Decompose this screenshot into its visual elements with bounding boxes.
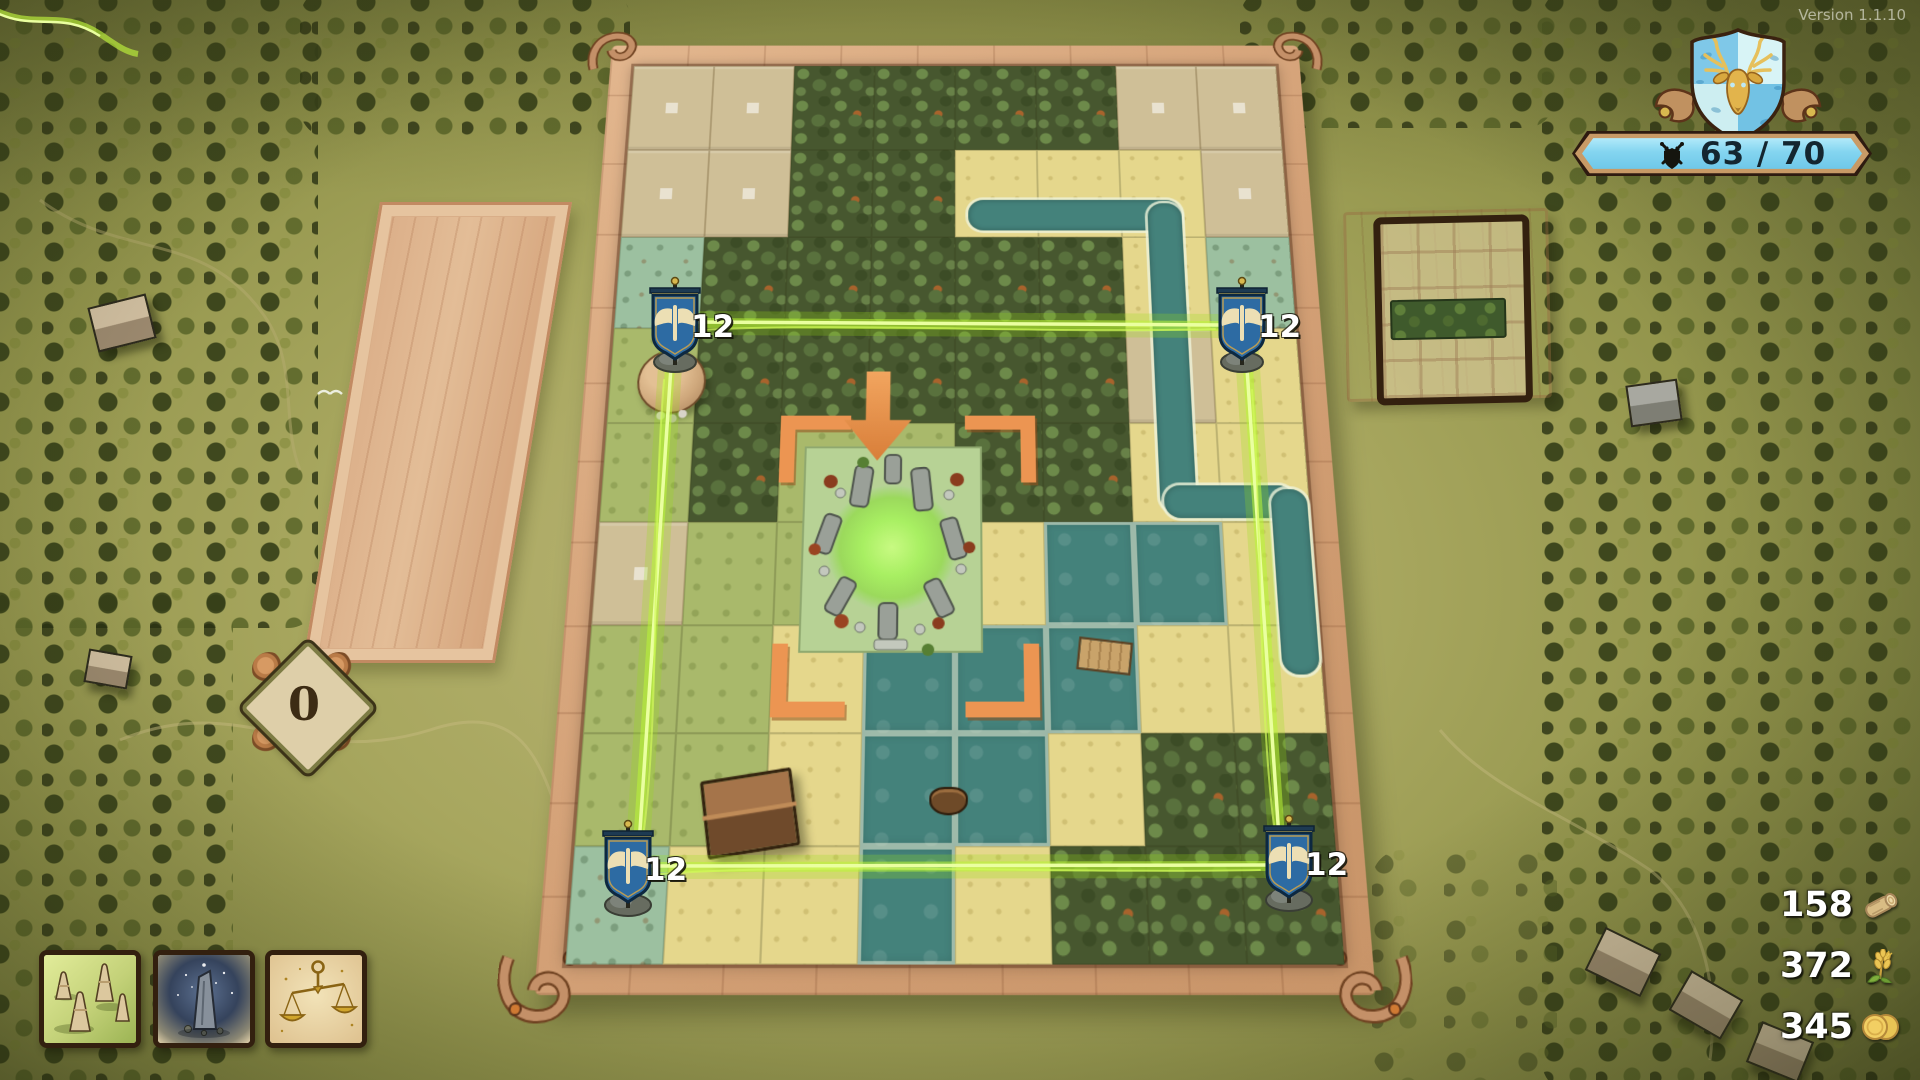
gold-coins-icon [1862, 1010, 1900, 1044]
wood-log-icon [1862, 888, 1900, 922]
flag-count: 12 [1305, 847, 1348, 883]
board-tile-water[interactable] [955, 733, 1050, 846]
plot-counter-badge: 0 [246, 646, 362, 762]
board-tile-sand[interactable] [955, 846, 1052, 964]
board-tile-forest[interactable] [788, 150, 873, 237]
next-tile-preview[interactable] [1373, 214, 1533, 405]
bird [316, 386, 346, 398]
board-tile-grass[interactable] [599, 423, 694, 522]
plot-counter-value: 0 [246, 646, 362, 762]
board-interior [565, 66, 1344, 965]
board-tile-empty-plot[interactable] [591, 522, 688, 625]
wood-count: 158 [1780, 885, 1853, 925]
board-tile-empty-plot[interactable] [1196, 66, 1283, 150]
board-tile-grass[interactable] [583, 625, 682, 733]
gold-count: 345 [1780, 1007, 1853, 1047]
selection-bracket [965, 416, 1036, 483]
board-tile-forest[interactable] [873, 66, 955, 150]
resource-wheat: 372 [1700, 945, 1900, 987]
background-house [83, 648, 132, 689]
board-tile-forest[interactable] [871, 150, 955, 237]
board-tile-forest[interactable] [1035, 66, 1118, 150]
score-banner: 63 / 70 [1572, 129, 1872, 178]
board-tile-forest[interactable] [791, 66, 874, 150]
board-tile-sand[interactable] [1137, 625, 1234, 733]
board-tile-forest[interactable] [1039, 237, 1126, 328]
flag-count: 12 [1258, 309, 1301, 345]
board-tile-water[interactable] [858, 846, 955, 964]
game-viewport: { "version_label": "Version 1.1.10", "hu… [0, 0, 1920, 1080]
scales-card[interactable] [265, 950, 367, 1048]
version-label: Version 1.1.10 [1798, 6, 1906, 24]
territory-flag-bottom-left[interactable]: 12 [592, 818, 664, 918]
board-tile-forest[interactable] [1145, 846, 1247, 964]
board-tile-empty-plot[interactable] [704, 150, 791, 237]
board-tile-forest[interactable] [955, 328, 1042, 423]
territory-flag-top-left[interactable]: 12 [639, 275, 711, 375]
dock [1076, 636, 1133, 675]
board-tile-grass[interactable] [682, 522, 777, 625]
board-tile-water[interactable] [1044, 522, 1137, 625]
wooden-house [700, 767, 801, 860]
wheat-icon [1862, 949, 1900, 983]
selection-bracket [770, 644, 846, 718]
resource-wood: 158 [1700, 884, 1900, 926]
battle-score-icon [1656, 138, 1688, 170]
board-tile-forest[interactable] [1042, 423, 1133, 522]
board-tile-empty-plot[interactable] [1201, 150, 1290, 237]
territory-flag-bottom-right[interactable]: 12 [1253, 813, 1325, 913]
board-tile-grass[interactable] [676, 625, 773, 733]
spire-mounds-card[interactable] [39, 950, 141, 1048]
board-tile-forest[interactable] [1040, 328, 1129, 423]
boat [929, 787, 968, 815]
board-tile-sand[interactable] [760, 846, 860, 964]
board-tile-empty-plot[interactable] [709, 66, 794, 150]
magic-wisp [0, 0, 140, 70]
flag-count: 12 [644, 852, 687, 888]
territory-flag-top-right[interactable]: 12 [1206, 275, 1278, 375]
board-tile-forest[interactable] [784, 237, 871, 328]
resource-gold: 345 [1700, 1006, 1900, 1048]
selection-bracket [965, 644, 1040, 718]
board-tile-forest[interactable] [1050, 846, 1150, 964]
background-house [1625, 379, 1682, 428]
score-value: 63 / 70 [1700, 136, 1826, 172]
board-tile-forest[interactable] [781, 328, 870, 423]
board-tile-empty-plot[interactable] [1116, 66, 1201, 150]
preview-forest-strip [1390, 298, 1507, 340]
selection-bracket [779, 416, 852, 483]
board-tile-empty-plot[interactable] [628, 66, 715, 150]
board-tile-water[interactable] [1133, 522, 1228, 625]
board-tile-forest[interactable] [955, 237, 1040, 328]
flag-count: 12 [691, 309, 734, 345]
next-tile-platform [1343, 208, 1552, 402]
board-tile-forest[interactable] [955, 66, 1037, 150]
board-tile-sand[interactable] [1048, 733, 1145, 846]
monolith-card[interactable] [153, 950, 255, 1048]
board-tile-forest[interactable] [1141, 733, 1240, 846]
board-tile-forest[interactable] [870, 237, 955, 328]
wheat-count: 372 [1780, 946, 1853, 986]
board-tile-empty-plot[interactable] [621, 150, 710, 237]
board-tile-forest[interactable] [688, 423, 781, 522]
